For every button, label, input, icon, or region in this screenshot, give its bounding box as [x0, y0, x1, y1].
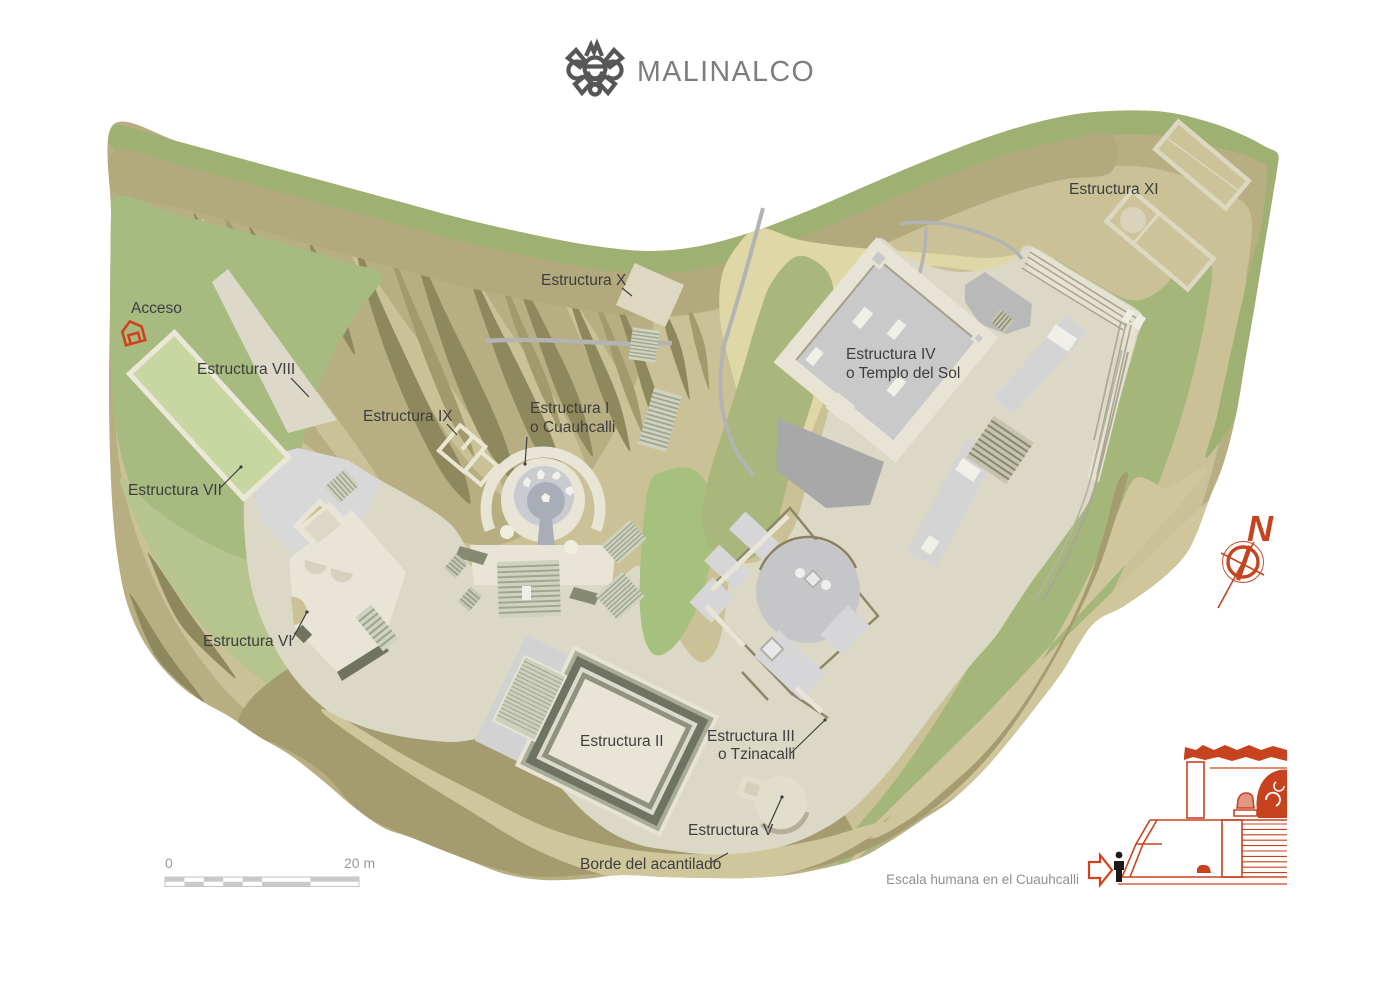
- svg-text:Estructura X: Estructura X: [541, 272, 627, 289]
- svg-text:Estructura IX: Estructura IX: [363, 408, 453, 425]
- svg-text:Estructura III: Estructura III: [707, 728, 795, 745]
- svg-text:Estructura V: Estructura V: [688, 822, 774, 839]
- svg-text:Estructura XI: Estructura XI: [1069, 181, 1159, 198]
- svg-text:Borde del acantilado: Borde del acantilado: [580, 856, 721, 873]
- svg-text:Estructura I: Estructura I: [530, 400, 609, 417]
- svg-text:Acceso: Acceso: [131, 300, 182, 317]
- svg-text:Estructura VII: Estructura VII: [128, 482, 222, 499]
- svg-text:N: N: [1247, 508, 1274, 549]
- svg-text:0: 0: [165, 855, 173, 871]
- svg-text:Estructura II: Estructura II: [580, 733, 664, 750]
- svg-text:o Templo del Sol: o Templo del Sol: [846, 365, 960, 382]
- svg-text:o Cuauhcalli: o Cuauhcalli: [530, 419, 615, 436]
- svg-text:Estructura VI: Estructura VI: [203, 633, 293, 650]
- svg-text:MALINALCO: MALINALCO: [637, 56, 815, 88]
- svg-text:Estructura VIII: Estructura VIII: [197, 361, 295, 378]
- svg-text:Estructura IV: Estructura IV: [846, 346, 936, 363]
- svg-text:o Tzinacalli: o Tzinacalli: [718, 746, 795, 763]
- svg-text:20 m: 20 m: [344, 855, 375, 871]
- svg-text:Escala humana en el Cuauhcalli: Escala humana en el Cuauhcalli: [886, 872, 1079, 887]
